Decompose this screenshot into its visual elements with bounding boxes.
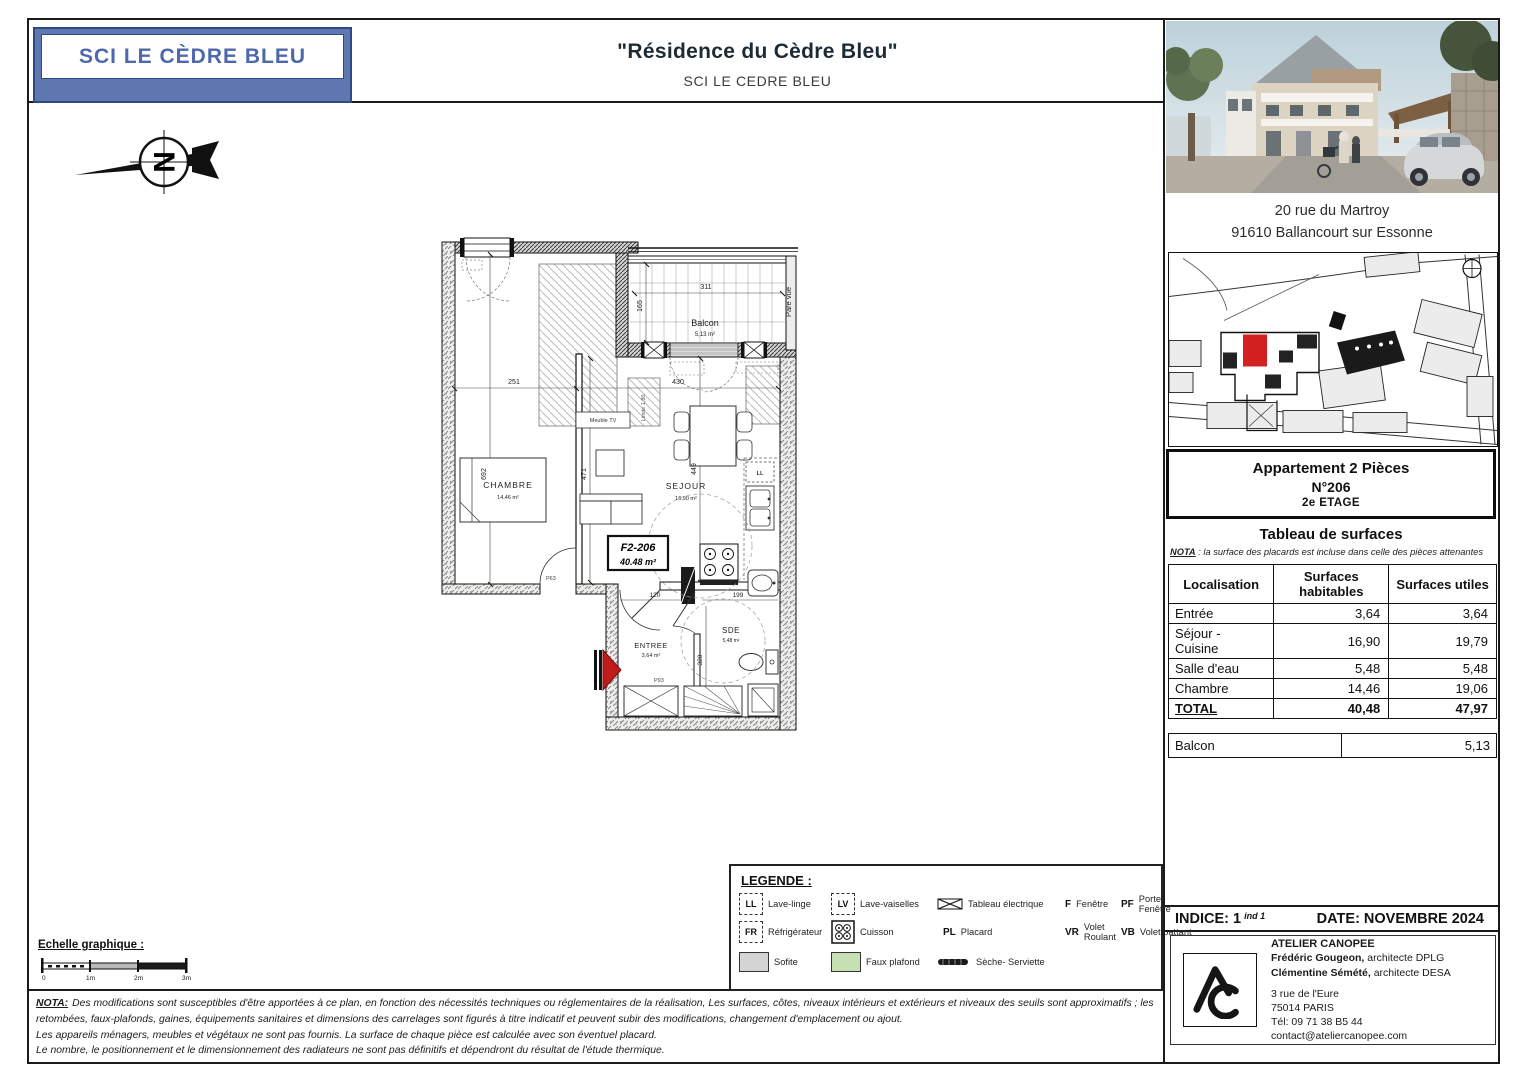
sde-label: SDE xyxy=(722,626,740,635)
door-chambre-label: P63 xyxy=(546,576,556,582)
atelier-canopee-logo-icon xyxy=(1183,953,1257,1027)
architect-email: contact@ateliercanopee.com xyxy=(1271,1029,1451,1043)
legend-item: F Fenêtre xyxy=(1065,899,1121,910)
unit-area: 40.48 m² xyxy=(619,557,657,567)
graphic-scale: Echelle graphique : 0 1m 2m 3m xyxy=(38,939,258,988)
company-logo-text: SCI LE CÈDRE BLEU xyxy=(79,45,306,69)
svg-text:3m: 3m xyxy=(182,975,191,982)
svg-text:1m: 1m xyxy=(86,975,95,982)
address-line1: 20 rue du Martroy xyxy=(1166,201,1498,223)
balcon-area: 5,13 m² xyxy=(695,332,715,338)
apartment-floor: 2e ETAGE xyxy=(1302,497,1360,509)
plan-sheet: SCI LE CÈDRE BLEU "Résidence du Cèdre Bl… xyxy=(0,0,1527,1080)
architect-firm: ATELIER CANOPEE xyxy=(1271,937,1451,952)
chambre-window xyxy=(460,238,514,301)
tv-cabinet: Meuble TV xyxy=(576,412,630,428)
limite-label: Limite 1,80 xyxy=(641,395,647,422)
table-total-row: TOTAL 40,48 47,97 xyxy=(1169,699,1497,719)
page-title: "Résidence du Cèdre Bleu" xyxy=(352,40,1163,64)
surface-table: Localisation Surfaces habitables Surface… xyxy=(1168,564,1497,719)
legend-item: LV Lave-vaiselles xyxy=(831,893,937,915)
highlighted-unit xyxy=(1243,335,1267,367)
legend-item: VR Volet Roulant xyxy=(1065,922,1121,942)
entree-area: 3,64 m² xyxy=(642,653,661,659)
architect-details: ATELIER CANOPEE Frédéric Gougeon, archit… xyxy=(1271,937,1451,1044)
cooktop-icon xyxy=(831,920,855,944)
legend-box: LEGENDE : LL Lave-linge LV Lave-vaiselle… xyxy=(729,864,1163,991)
col-localisation: Localisation xyxy=(1169,565,1274,604)
chambre-label: CHAMBRE xyxy=(483,480,533,490)
washer-label: LL xyxy=(757,471,764,477)
north-compass-icon: N xyxy=(72,118,222,198)
surface-table-nota: NOTA : la surface des placards est inclu… xyxy=(1170,547,1496,557)
floor-plan: Meuble TV LL xyxy=(438,236,818,764)
architect-address2: 75014 PARIS xyxy=(1271,1001,1451,1015)
table-row: Séjour - Cuisine 16,90 19,79 xyxy=(1169,624,1497,659)
svg-text:449: 449 xyxy=(691,463,698,475)
table-row: Entrée 3,64 3,64 xyxy=(1169,604,1497,624)
legend-item: FR Réfrigérateur xyxy=(739,921,831,943)
svg-text:165: 165 xyxy=(637,300,644,312)
svg-text:251: 251 xyxy=(508,379,520,386)
table-row: Chambre 14,46 19,06 xyxy=(1169,679,1497,699)
site-map xyxy=(1168,252,1498,447)
legend-item: PL Placard xyxy=(937,927,1065,938)
col-habitables: Surfaces habitables xyxy=(1274,565,1389,604)
svg-text:0: 0 xyxy=(42,975,46,982)
apartment-number: N°206 xyxy=(1311,479,1350,495)
towel-dryer-icon xyxy=(937,957,971,967)
pare-vue-label: Pare vue xyxy=(784,287,793,317)
electrical-panel-icon xyxy=(937,897,963,911)
door-entree-label: P93 xyxy=(654,678,664,684)
apartment-type: Appartement 2 Pièces xyxy=(1253,460,1410,477)
dishwasher-icon: LV xyxy=(831,893,855,915)
balcon-label: Balcon xyxy=(691,318,719,328)
svg-text:2m: 2m xyxy=(134,975,143,982)
svg-text:120: 120 xyxy=(650,592,661,599)
legend-item: PF Porte-Fenêtre xyxy=(1121,894,1193,914)
compass-letter: N xyxy=(147,151,180,173)
svg-text:430: 430 xyxy=(672,379,684,386)
apartment-info-box: Appartement 2 Pièces N°206 2e ETAGE xyxy=(1166,449,1496,519)
date: DATE: NOVEMBRE 2024 xyxy=(1317,911,1484,927)
scale-title: Echelle graphique : xyxy=(38,939,258,951)
false-ceiling-swatch xyxy=(831,952,861,972)
company-logo-box: SCI LE CÈDRE BLEU xyxy=(33,27,352,103)
svg-text:320: 320 xyxy=(697,654,704,665)
legend-item: Tableau électrique xyxy=(937,897,1065,911)
unit-code: F2-206 xyxy=(621,542,657,554)
balcon-table: Balcon 5,13 xyxy=(1168,733,1497,758)
architect-block: ATELIER CANOPEE Frédéric Gougeon, archit… xyxy=(1170,935,1496,1045)
sofa xyxy=(580,450,642,524)
col-utiles: Surfaces utiles xyxy=(1389,565,1497,604)
architect-address1: 3 rue de l'Eure xyxy=(1271,987,1451,1001)
entree-label: ENTREE xyxy=(634,641,667,650)
soffit-swatch xyxy=(739,952,769,972)
page-subtitle: SCI LE CEDRE BLEU xyxy=(352,73,1163,89)
legend-item: Sofite xyxy=(739,952,831,972)
address-line2: 91610 Ballancourt sur Essonne xyxy=(1166,223,1498,245)
architect-phone: Tél: 09 71 38 B5 44 xyxy=(1271,1015,1451,1029)
svg-text:471: 471 xyxy=(581,468,588,480)
legend-item: VB Volet battant xyxy=(1121,927,1193,938)
table-row: Balcon 5,13 xyxy=(1169,734,1497,758)
legend-item: Faux plafond xyxy=(831,952,937,972)
unit-badge: F2-206 40.48 m² xyxy=(608,536,668,570)
washer-icon: LL xyxy=(739,893,763,915)
meuble-tv-label: Meuble TV xyxy=(590,418,617,424)
bed xyxy=(460,458,546,522)
legend-title: LEGENDE : xyxy=(741,873,1161,888)
svg-text:692: 692 xyxy=(481,468,488,480)
chambre-area: 14,46 m² xyxy=(497,495,519,501)
indice-date-row: INDICE: 1ind 1 DATE: NOVEMBRE 2024 xyxy=(1165,905,1498,932)
legend-item: Cuisson xyxy=(831,920,937,944)
svg-text:199: 199 xyxy=(733,592,744,599)
entry-closet xyxy=(624,686,678,716)
nota-paragraph: NOTA:Des modifications sont susceptibles… xyxy=(36,996,1160,1059)
svg-text:311: 311 xyxy=(700,284,711,291)
scale-bar: 0 1m 2m 3m xyxy=(38,955,208,983)
legend-item: Sèche- Serviette xyxy=(937,957,1065,967)
building-rendering-image xyxy=(1166,21,1498,193)
title-block: "Résidence du Cèdre Bleu" SCI LE CEDRE B… xyxy=(352,40,1163,89)
surface-table-title: Tableau de surfaces xyxy=(1166,526,1496,543)
project-address: 20 rue du Martroy 91610 Ballancourt sur … xyxy=(1166,201,1498,245)
table-row: Salle d'eau 5,48 5,48 xyxy=(1169,659,1497,679)
sejour-area: 16,90 m² xyxy=(675,496,697,502)
sde-area: 5,48 m² xyxy=(723,638,740,644)
company-logo-inner: SCI LE CÈDRE BLEU xyxy=(41,34,344,79)
sejour-label: SEJOUR xyxy=(666,481,706,491)
legend-item: LL Lave-linge xyxy=(739,893,831,915)
dining-table xyxy=(674,406,752,466)
fridge-icon: FR xyxy=(739,921,763,943)
